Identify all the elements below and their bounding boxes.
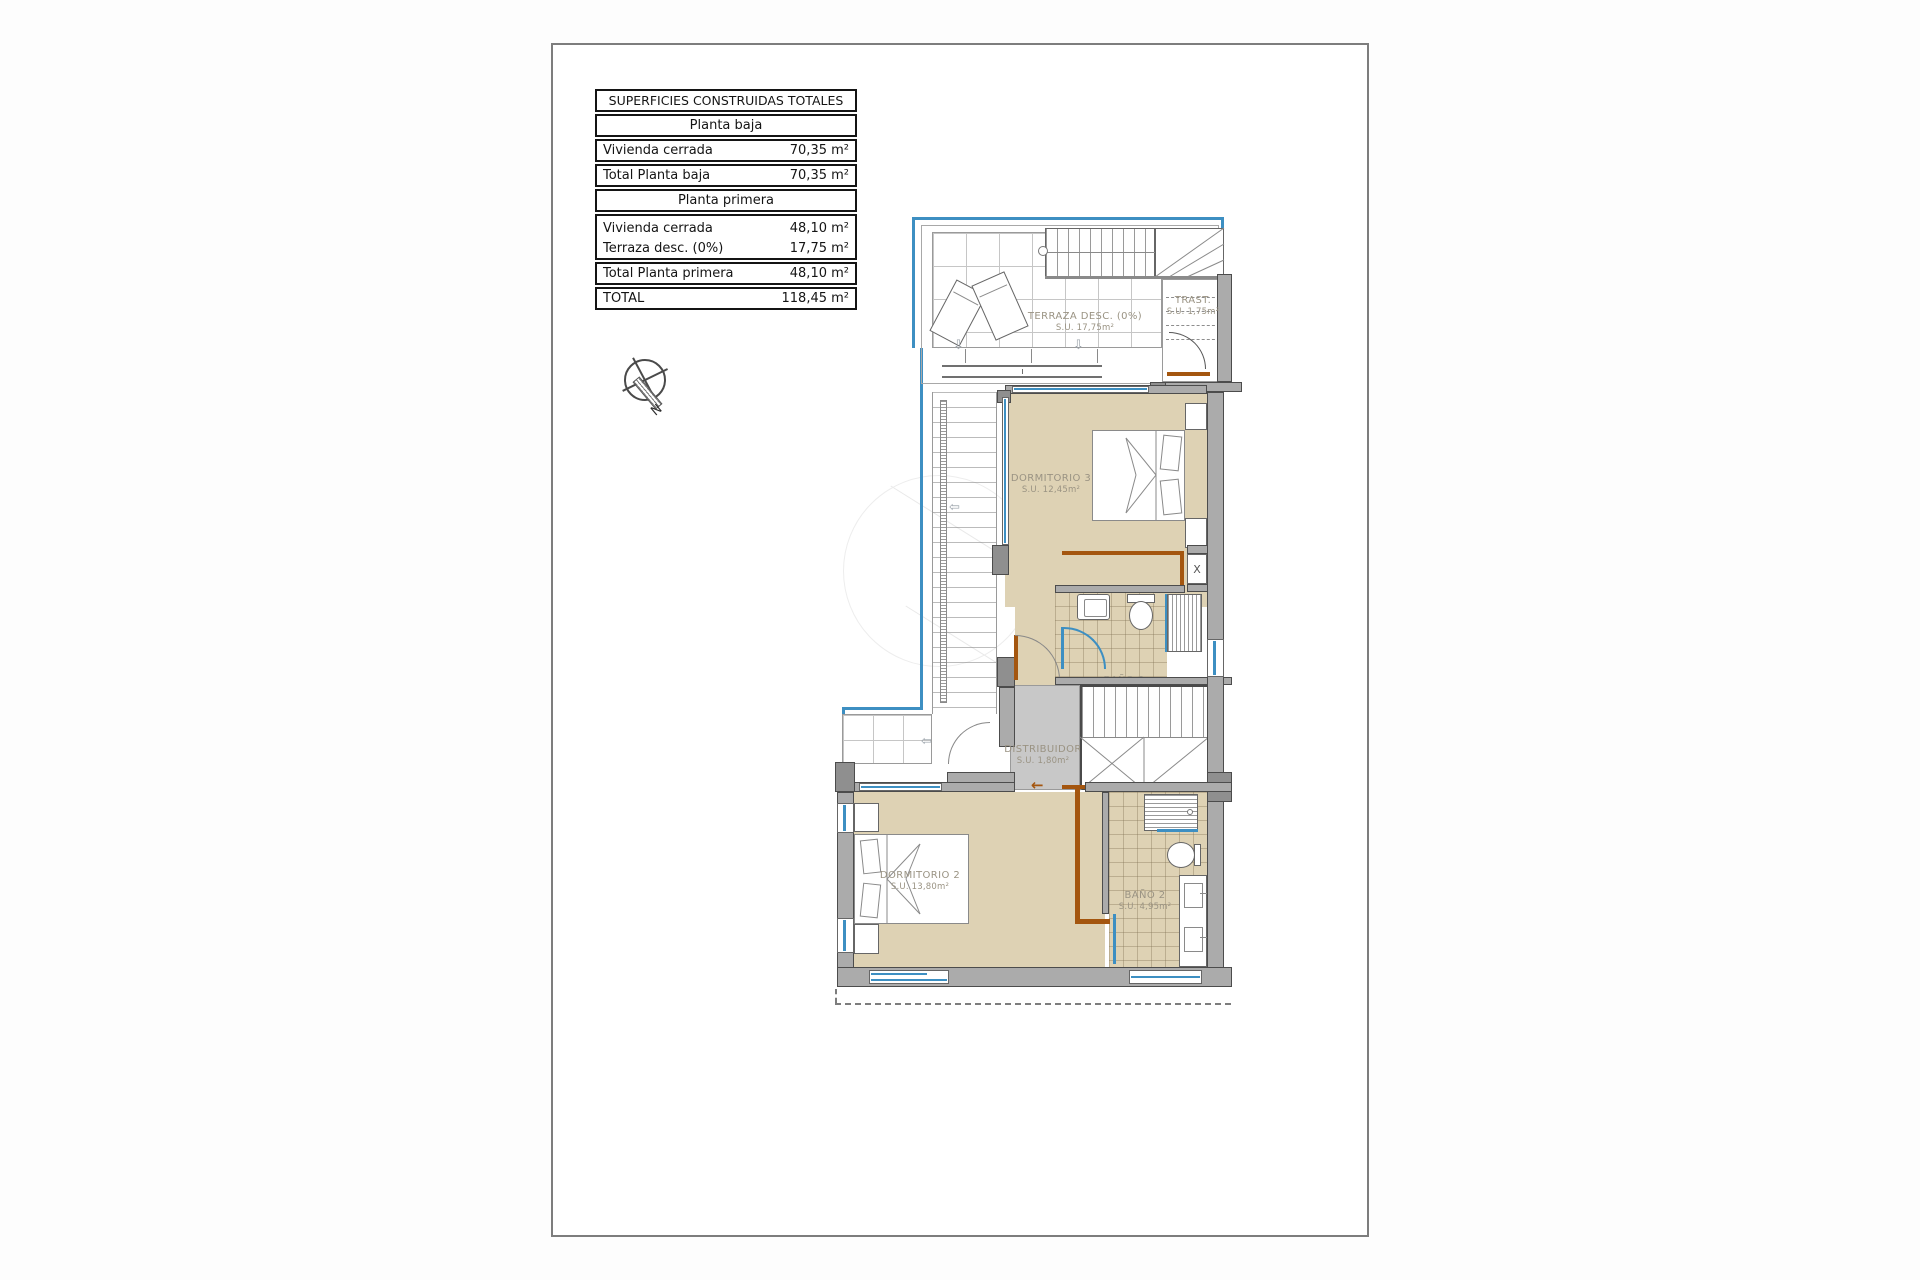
exterior-wall bbox=[1207, 392, 1224, 987]
room-label-trastero: TRAST. S.U. 1,75m² bbox=[1167, 295, 1220, 317]
room-name: DORMITORIO 3 bbox=[1011, 473, 1091, 484]
stair-upper-flight bbox=[1045, 228, 1155, 279]
nightstand bbox=[1185, 403, 1207, 430]
shower-tray bbox=[1144, 794, 1198, 831]
room-name: TRAST. bbox=[1175, 295, 1211, 306]
window-glazing bbox=[1213, 641, 1216, 675]
window-glazing bbox=[1131, 976, 1200, 978]
wardrobe-line bbox=[1075, 787, 1080, 924]
shower-screen bbox=[1113, 914, 1116, 964]
room-name: TERRAZA DESC. (0%) bbox=[1028, 311, 1142, 322]
window-glazing bbox=[1014, 388, 1147, 390]
room-label-dormitorio3: DORMITORIO 3 S.U. 12,45m² bbox=[1011, 473, 1091, 495]
railing-post bbox=[1097, 349, 1098, 363]
nightstand bbox=[1185, 518, 1207, 548]
facade-glazing-line bbox=[842, 707, 923, 710]
window-glazing bbox=[843, 805, 846, 831]
room-name: BAÑO 2 bbox=[1124, 890, 1165, 901]
bed-double bbox=[1092, 430, 1185, 521]
door-threshold bbox=[1062, 785, 1085, 789]
room-area: S.U. 17,75m² bbox=[1028, 323, 1142, 333]
room-area: S.U. 1,75m² bbox=[1167, 307, 1220, 317]
shower-screen bbox=[1165, 594, 1167, 652]
vanity-unit bbox=[1179, 875, 1207, 967]
terrace-edge-line bbox=[912, 217, 915, 348]
wall-pillar bbox=[835, 762, 855, 792]
stair-newel bbox=[1038, 246, 1048, 256]
wardrobe-line bbox=[1180, 555, 1184, 585]
room-label-dormitorio2: DORMITORIO 2 S.U. 13,80m² bbox=[880, 870, 960, 892]
floor-plan: ⇩ ⇩ TERRAZA DESC. (0%) S.U. 17,75m² TRAS… bbox=[553, 45, 1371, 1239]
terrace-railing bbox=[942, 365, 1102, 378]
down-arrow-icon: ⇩ bbox=[1073, 339, 1084, 352]
left-arrow-icon: ⇦ bbox=[921, 735, 932, 748]
shaft-box: X bbox=[1187, 554, 1207, 584]
stair-winder-lines bbox=[1155, 228, 1224, 279]
room-label-terraza: TERRAZA DESC. (0%) S.U. 17,75m² bbox=[1028, 311, 1142, 333]
facade-glazing-line bbox=[920, 348, 923, 710]
boundary-dashed-line bbox=[835, 989, 837, 1003]
railing-post bbox=[965, 349, 966, 363]
terrace-edge-line bbox=[912, 217, 1224, 220]
nightstand bbox=[854, 924, 879, 954]
room-area: S.U. 12,45m² bbox=[1011, 485, 1091, 495]
room-name: DISTRIBUIDOR bbox=[1004, 744, 1081, 755]
distribuidor-floor bbox=[1010, 685, 1080, 790]
sheet-page: SUPERFICIES CONSTRUIDAS TOTALES Planta b… bbox=[551, 43, 1369, 1237]
room-area: S.U. 13,80m² bbox=[880, 882, 960, 892]
drawing-sheet: SUPERFICIES CONSTRUIDAS TOTALES Planta b… bbox=[0, 0, 1920, 1280]
window-glazing bbox=[871, 979, 947, 981]
toilet bbox=[1129, 601, 1153, 630]
entry-arrow-icon: ← bbox=[1031, 778, 1044, 793]
room-area: S.U. 1,80m² bbox=[1004, 756, 1081, 766]
shower-screen bbox=[1157, 829, 1198, 832]
down-arrow-icon: ⇩ bbox=[953, 339, 964, 352]
window-glazing bbox=[861, 786, 940, 788]
toilet bbox=[1167, 842, 1195, 868]
room-label-bano2: BAÑO 2 S.U. 4,95m² bbox=[1119, 890, 1172, 912]
porch-tiles bbox=[842, 714, 932, 764]
toilet-cistern bbox=[1194, 844, 1201, 866]
boundary-dashed-line bbox=[835, 1003, 1231, 1005]
railing-post bbox=[1031, 349, 1032, 363]
room-label-distribuidor: DISTRIBUIDOR S.U. 1,80m² bbox=[1004, 744, 1081, 766]
wall-segment bbox=[992, 545, 1009, 575]
window-glazing bbox=[1004, 399, 1006, 543]
sink bbox=[1077, 594, 1110, 620]
wall-segment bbox=[947, 772, 1015, 783]
wall-segment bbox=[997, 657, 1015, 687]
interior-wall bbox=[1055, 677, 1232, 685]
wardrobe-line bbox=[1062, 551, 1184, 555]
louver-rail bbox=[940, 400, 947, 703]
wardrobe-line bbox=[1075, 919, 1110, 924]
trastero-dash bbox=[1166, 325, 1220, 326]
window-glazing bbox=[843, 920, 846, 951]
interior-wall bbox=[1102, 792, 1109, 914]
shower-tray bbox=[1167, 594, 1202, 652]
window-glazing bbox=[871, 973, 927, 975]
stair-handrail bbox=[1045, 252, 1155, 253]
nightstand bbox=[854, 803, 879, 832]
interior-wall bbox=[1055, 585, 1185, 593]
wall-segment bbox=[999, 687, 1015, 747]
room-name: DORMITORIO 2 bbox=[880, 870, 960, 881]
porch-door-arc bbox=[948, 722, 990, 764]
room-area: S.U. 4,95m² bbox=[1119, 902, 1172, 912]
interior-wall bbox=[1085, 782, 1232, 792]
exterior-wall bbox=[1217, 274, 1232, 382]
left-arrow-icon: ⇦ bbox=[949, 501, 960, 514]
trastero-door-threshold bbox=[1167, 372, 1210, 376]
